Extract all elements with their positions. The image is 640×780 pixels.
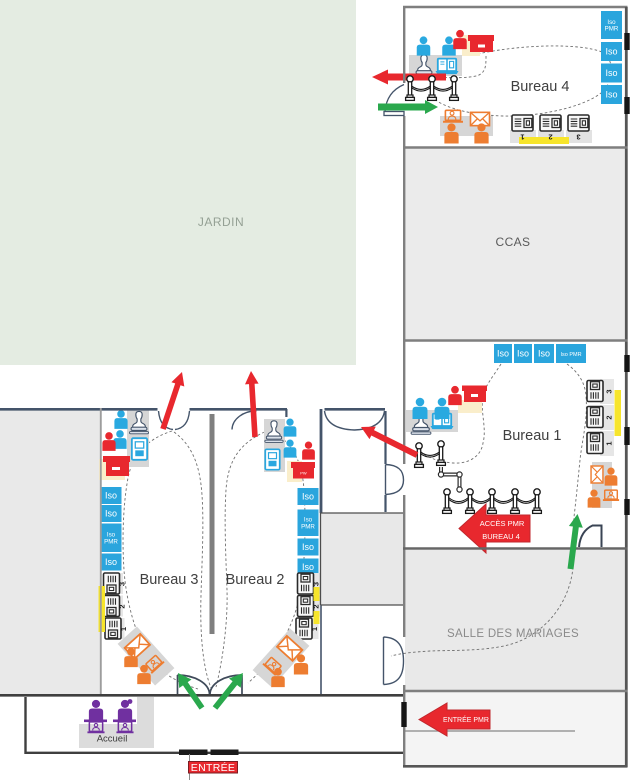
svg-text:Iso: Iso <box>105 509 117 519</box>
svg-text:2: 2 <box>311 604 320 608</box>
svg-text:1: 1 <box>119 627 128 631</box>
svg-text:Iso: Iso <box>105 491 117 501</box>
svg-text:2: 2 <box>604 415 613 419</box>
svg-text:Iso: Iso <box>105 557 117 567</box>
svg-text:Iso: Iso <box>302 492 314 502</box>
svg-text:1: 1 <box>520 133 524 142</box>
svg-text:CCAS: CCAS <box>496 235 531 249</box>
svg-text:Iso: Iso <box>538 349 550 359</box>
svg-text:3: 3 <box>576 133 580 142</box>
svg-text:Iso: Iso <box>497 349 509 359</box>
svg-text:2: 2 <box>117 604 126 608</box>
svg-text:1: 1 <box>310 627 319 631</box>
svg-text:3: 3 <box>604 389 613 393</box>
svg-text:PMR: PMR <box>301 523 315 530</box>
svg-text:ENTRÉE PMR: ENTRÉE PMR <box>443 715 489 724</box>
svg-text:Bureau 3: Bureau 3 <box>140 572 199 588</box>
svg-text:BUREAU 4: BUREAU 4 <box>482 532 520 541</box>
svg-text:3: 3 <box>311 582 320 586</box>
svg-text:Bureau 4: Bureau 4 <box>511 79 570 95</box>
svg-text:2: 2 <box>548 133 552 142</box>
svg-text:ENTRÉE: ENTRÉE <box>191 761 235 774</box>
svg-text:Iso: Iso <box>302 542 314 552</box>
svg-text:Iso: Iso <box>517 349 529 359</box>
svg-text:PW: PW <box>300 471 307 476</box>
svg-text:Iso: Iso <box>302 562 314 572</box>
svg-text:Iso: Iso <box>605 47 617 57</box>
svg-text:JARDIN: JARDIN <box>198 215 244 229</box>
svg-text:SALLE DES MARIAGES: SALLE DES MARIAGES <box>447 628 579 640</box>
svg-text:ACCÈS PMR: ACCÈS PMR <box>480 519 525 528</box>
svg-text:3: 3 <box>117 582 126 586</box>
svg-text:Accueil: Accueil <box>97 734 128 745</box>
svg-text:PMR: PMR <box>104 538 118 545</box>
svg-text:Iso: Iso <box>605 90 617 100</box>
svg-text:PMR: PMR <box>605 26 619 33</box>
svg-text:Iso: Iso <box>605 68 617 78</box>
svg-text:Bureau 2: Bureau 2 <box>226 572 285 588</box>
svg-text:1: 1 <box>604 441 613 445</box>
svg-text:Bureau 1: Bureau 1 <box>503 428 562 444</box>
svg-text:Iso PMR: Iso PMR <box>560 352 581 358</box>
